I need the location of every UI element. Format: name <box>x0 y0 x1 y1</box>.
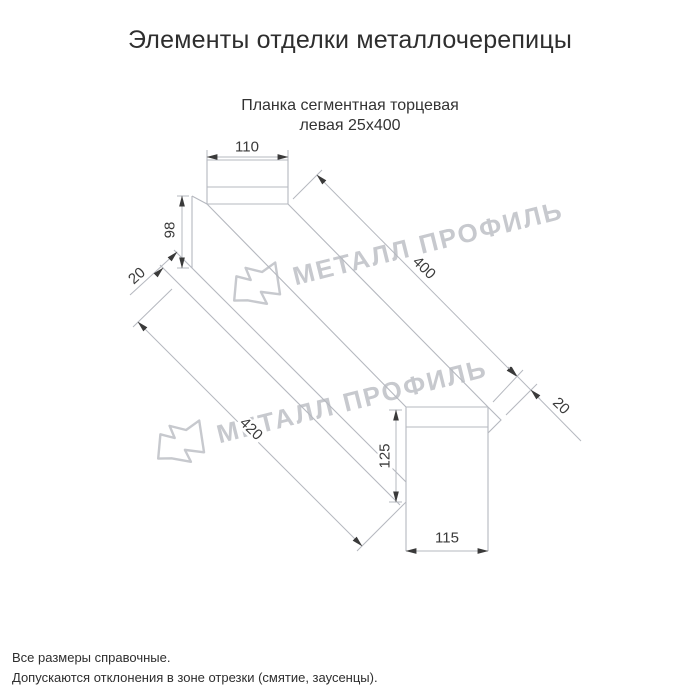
dim-left-height: 98 <box>163 220 178 241</box>
technical-drawing <box>0 0 700 700</box>
dim-right-height: 125 <box>378 441 393 470</box>
footer-notes: Все размеры справочные. Допускаются откл… <box>12 648 378 688</box>
profile-outline <box>160 160 501 551</box>
footer-note-1: Все размеры справочные. <box>12 648 378 668</box>
dim-bottom-width: 115 <box>433 531 461 546</box>
dim-top-width: 110 <box>233 140 261 155</box>
page: Элементы отделки металлочерепицы Планка … <box>0 0 700 700</box>
extension-lines <box>133 150 537 551</box>
footer-note-2: Допускаются отклонения в зоне отрезки (с… <box>12 668 378 688</box>
dimension-lines <box>130 157 581 551</box>
